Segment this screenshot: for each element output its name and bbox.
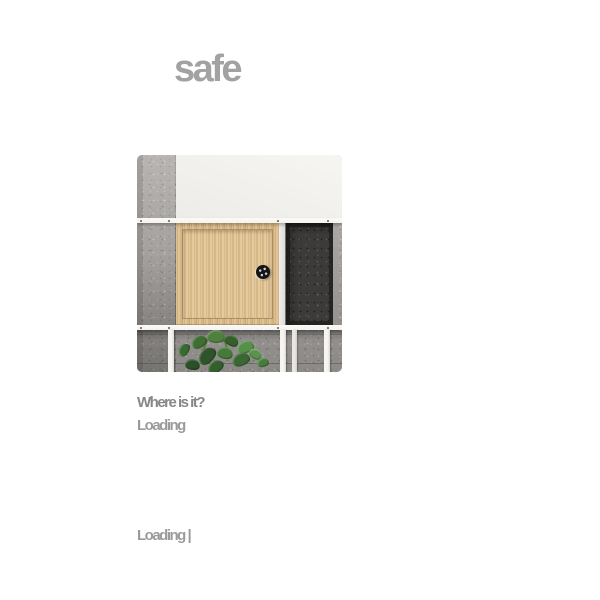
screw-dot	[327, 220, 329, 222]
cabinet-top-panel	[176, 155, 342, 218]
cabinet-top-shelf	[137, 218, 342, 223]
screw-dot	[140, 327, 142, 329]
door-knob	[256, 265, 270, 279]
plant-leaf	[257, 357, 270, 367]
cabinet-leg	[292, 330, 297, 372]
screw-dot	[140, 220, 142, 222]
product-photo	[137, 155, 342, 372]
status-text: Loading |	[137, 528, 190, 544]
question-subtext: Loading	[137, 418, 185, 434]
cabinet-dark-panel	[285, 223, 333, 325]
plant-leaf	[206, 329, 226, 345]
question-text: Where is it?	[137, 395, 204, 411]
cabinet-wood-door	[176, 223, 279, 325]
screw-dot	[168, 220, 170, 222]
page-title: safe	[174, 48, 240, 91]
screw-dot	[327, 327, 329, 329]
plant	[167, 327, 287, 372]
plant-leaf	[176, 341, 193, 358]
cabinet-leg	[324, 330, 330, 372]
screw-dot	[277, 220, 279, 222]
